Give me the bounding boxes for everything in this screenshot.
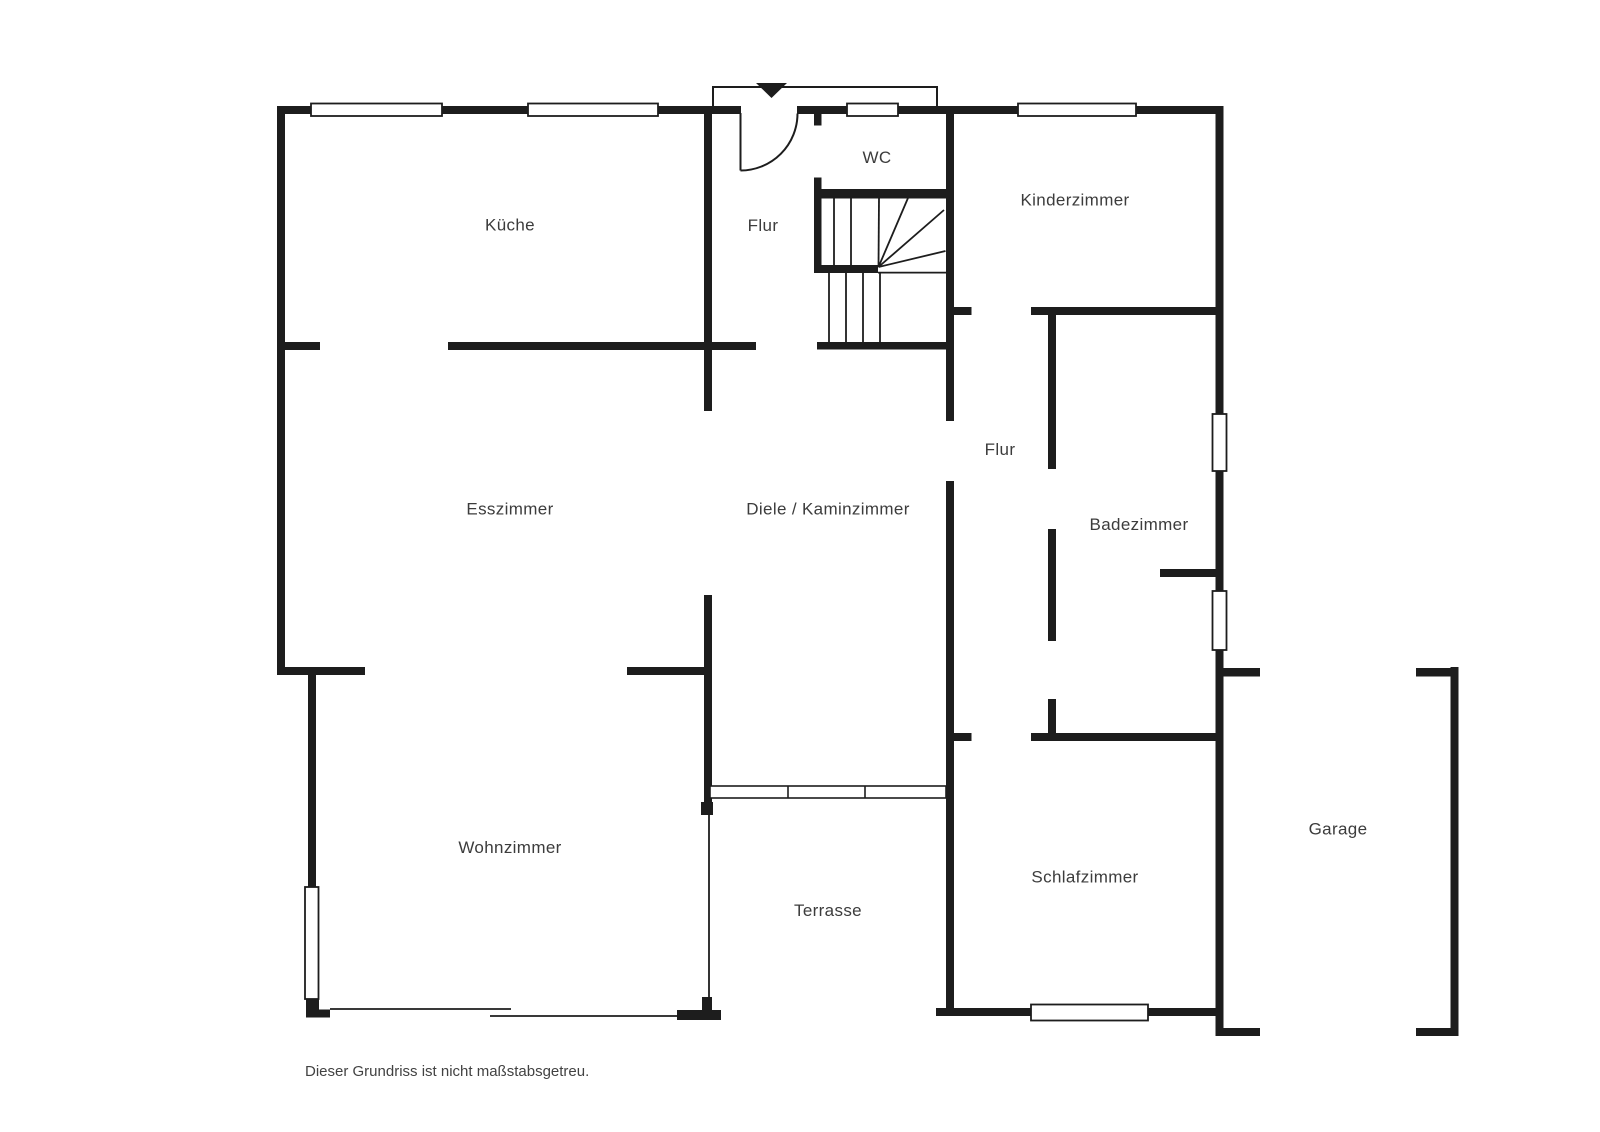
svg-text:Garage: Garage	[1309, 820, 1368, 839]
svg-text:Diele / Kaminzimmer: Diele / Kaminzimmer	[746, 500, 909, 519]
svg-text:Esszimmer: Esszimmer	[466, 500, 553, 519]
svg-text:Kinderzimmer: Kinderzimmer	[1020, 191, 1129, 210]
svg-text:Flur: Flur	[985, 440, 1016, 459]
svg-text:Schlafzimmer: Schlafzimmer	[1031, 868, 1138, 887]
svg-text:Wohnzimmer: Wohnzimmer	[458, 838, 561, 857]
svg-text:Dieser Grundriss ist nicht maß: Dieser Grundriss ist nicht maßstabsgetre…	[305, 1063, 589, 1080]
svg-text:Terrasse: Terrasse	[794, 901, 862, 920]
svg-text:Badezimmer: Badezimmer	[1090, 515, 1189, 534]
svg-text:Küche: Küche	[485, 216, 535, 235]
svg-text:WC: WC	[862, 148, 891, 167]
svg-text:Flur: Flur	[748, 216, 779, 235]
